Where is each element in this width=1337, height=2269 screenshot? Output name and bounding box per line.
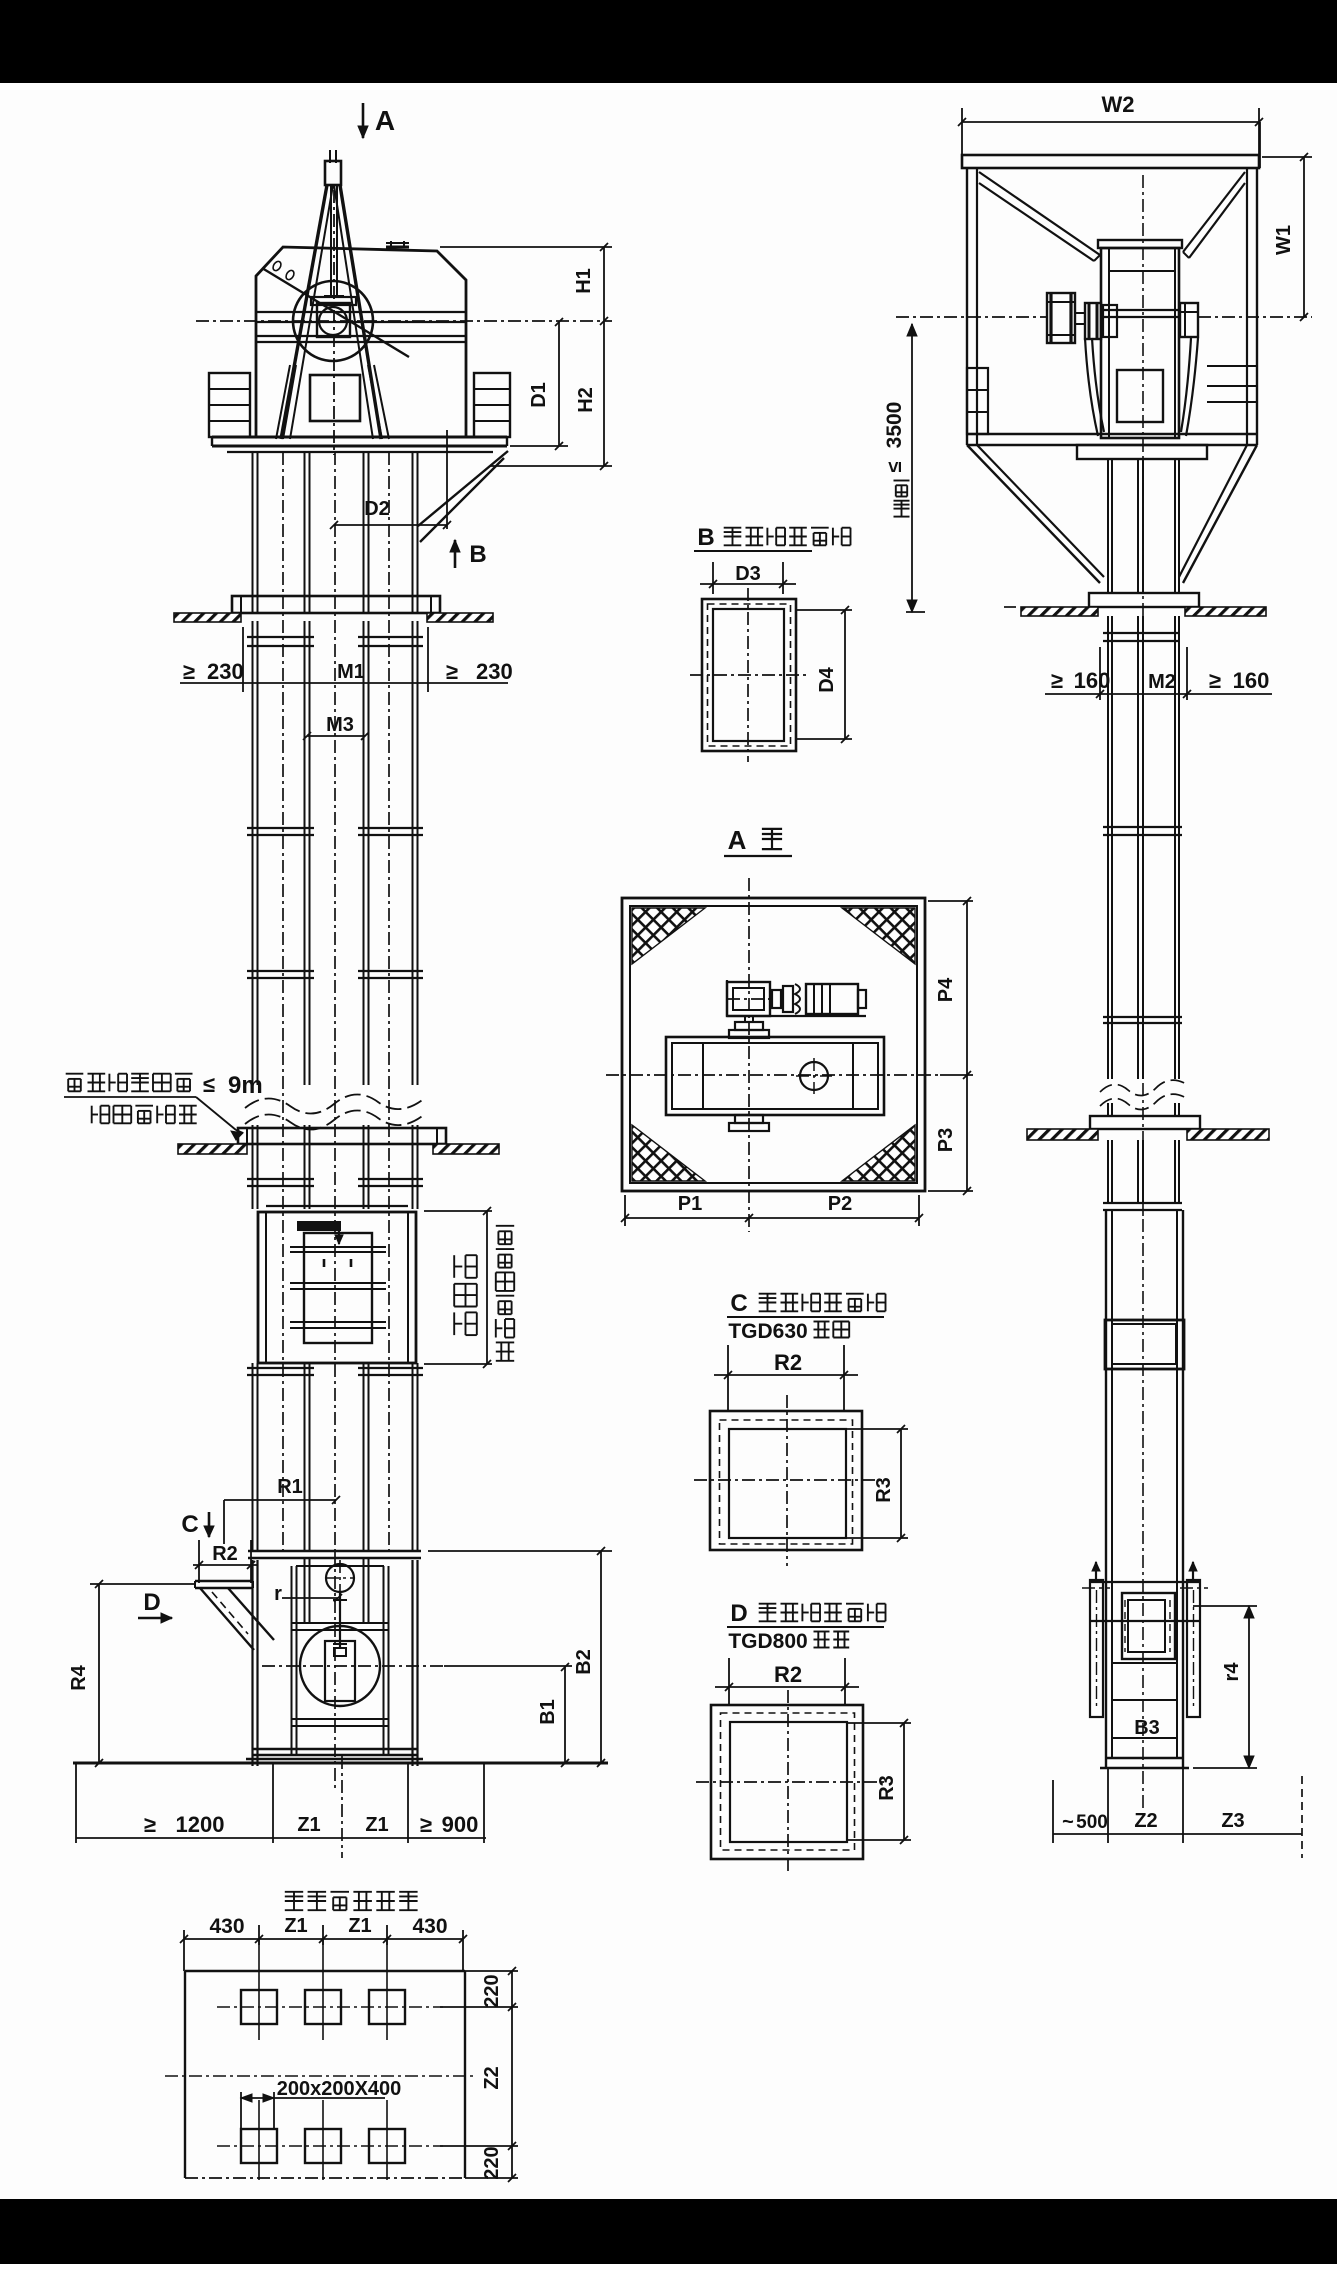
svg-text:Z1: Z1	[297, 1814, 320, 1836]
svg-text:TGD800: TGD800	[728, 1630, 807, 1653]
svg-text:P2: P2	[828, 1193, 852, 1215]
svg-text:TGD630: TGD630	[728, 1320, 807, 1343]
svg-text:220: 220	[481, 1974, 503, 2007]
svg-text:P1: P1	[678, 1193, 702, 1215]
svg-text:200x200X400: 200x200X400	[277, 2078, 402, 2100]
svg-text:B2: B2	[573, 1649, 595, 1675]
svg-text:160: 160	[1233, 668, 1270, 693]
svg-text:D: D	[730, 1600, 747, 1627]
svg-text:~: ~	[1062, 1811, 1074, 1833]
svg-text:B1: B1	[537, 1699, 559, 1725]
svg-text:220: 220	[481, 2146, 503, 2179]
svg-text:M1: M1	[337, 661, 365, 683]
svg-text:Z1: Z1	[365, 1814, 388, 1836]
svg-text:A: A	[728, 825, 747, 855]
svg-text:A: A	[375, 105, 395, 136]
svg-text:r4: r4	[1221, 1662, 1243, 1682]
svg-text:r: r	[274, 1583, 282, 1605]
svg-text:P3: P3	[935, 1128, 957, 1152]
svg-text:Z1: Z1	[284, 1915, 307, 1937]
svg-text:430: 430	[412, 1915, 447, 1938]
svg-text:430: 430	[209, 1915, 244, 1938]
svg-text:R3: R3	[873, 1477, 895, 1503]
svg-text:≤: ≤	[884, 461, 906, 472]
svg-text:D: D	[143, 1589, 160, 1616]
svg-text:P4: P4	[935, 977, 957, 1002]
svg-text:≥: ≥	[446, 659, 458, 684]
svg-text:≥: ≥	[1209, 668, 1221, 693]
svg-text:B: B	[697, 524, 714, 551]
svg-text:R2: R2	[774, 1662, 802, 1687]
svg-text:R2: R2	[774, 1350, 802, 1375]
svg-text:9m: 9m	[228, 1072, 263, 1099]
svg-text:W2: W2	[1102, 92, 1135, 117]
svg-text:Z2: Z2	[481, 2066, 503, 2089]
svg-text:160: 160	[1074, 668, 1111, 693]
svg-text:≥: ≥	[144, 1812, 156, 1837]
svg-text:R2: R2	[212, 1543, 238, 1565]
svg-text:3500: 3500	[883, 402, 906, 449]
svg-text:R3: R3	[876, 1775, 898, 1801]
svg-text:B3: B3	[1134, 1717, 1160, 1739]
svg-text:Z1: Z1	[348, 1915, 371, 1937]
svg-text:≥: ≥	[183, 659, 195, 684]
svg-text:500: 500	[1076, 1812, 1108, 1833]
svg-text:Z3: Z3	[1221, 1810, 1244, 1832]
svg-text:D1: D1	[528, 382, 550, 408]
svg-text:M3: M3	[326, 714, 354, 736]
svg-text:D4: D4	[816, 666, 838, 692]
svg-text:W1: W1	[1273, 225, 1295, 255]
svg-text:230: 230	[207, 659, 244, 684]
svg-text:≥: ≥	[420, 1812, 432, 1837]
svg-text:H1: H1	[573, 268, 595, 294]
svg-text:≤: ≤	[203, 1072, 215, 1097]
svg-text:C: C	[730, 1290, 747, 1317]
svg-text:1200: 1200	[176, 1812, 225, 1837]
svg-text:H2: H2	[575, 387, 597, 413]
svg-text:900: 900	[442, 1812, 479, 1837]
svg-text:230: 230	[476, 659, 513, 684]
svg-text:B: B	[469, 541, 486, 568]
svg-text:R1: R1	[277, 1476, 303, 1498]
svg-text:D3: D3	[735, 563, 761, 585]
svg-text:R4: R4	[68, 1664, 90, 1690]
svg-text:M2: M2	[1148, 671, 1176, 693]
svg-text:C: C	[181, 1511, 198, 1538]
svg-text:≥: ≥	[1051, 668, 1063, 693]
svg-text:Z2: Z2	[1134, 1810, 1157, 1832]
